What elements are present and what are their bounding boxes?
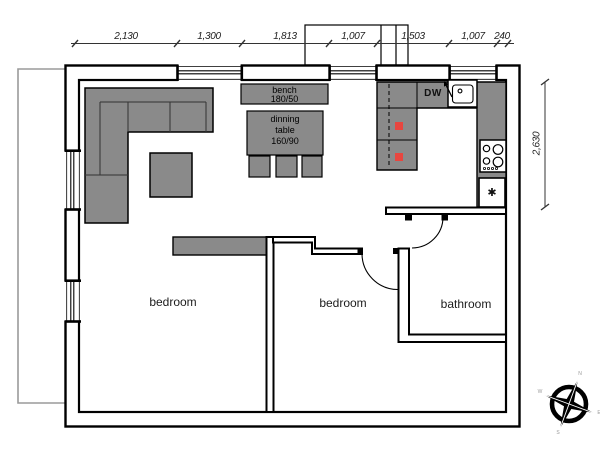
bedroom-door-arc — [362, 254, 398, 290]
corner-sofa — [85, 88, 213, 223]
room-label-bathroom: bathroom — [426, 297, 506, 311]
compass-west-label: W — [535, 389, 545, 395]
window-top-1 — [176, 63, 243, 83]
dishwasher-label: DW — [419, 88, 447, 99]
dining-chairs — [249, 156, 322, 177]
window-left-2 — [63, 279, 83, 322]
coffee-table — [150, 153, 192, 197]
kitchen-sink — [448, 80, 477, 107]
compass-rose — [545, 380, 594, 429]
wall-bathroom-left-bottom — [399, 249, 507, 343]
bathroom-door-arc — [412, 217, 443, 248]
wall-bedroom-middle-top — [273, 237, 362, 254]
compass-north-label: N — [575, 371, 585, 377]
compass-south-label: S — [553, 430, 563, 436]
floor-plan-drawing — [0, 0, 600, 460]
freezer-symbol: ✱ — [479, 186, 505, 199]
dining-table-label-line1: dinning — [247, 115, 323, 125]
dining-table-label-line3: 160/90 — [247, 137, 323, 147]
bench-label-line2: 180/50 — [241, 95, 328, 105]
window-left-1 — [63, 149, 83, 210]
wall-kitchen-bathroom — [386, 208, 506, 215]
room-label-bedroom-left: bedroom — [133, 295, 213, 309]
cooktop — [480, 140, 506, 172]
wall-bedrooms-divider — [267, 237, 274, 412]
dimension-right: 2,630 — [532, 104, 543, 184]
dimension-top-2: 1,300 — [169, 31, 249, 42]
room-label-bedroom-middle: bedroom — [303, 296, 383, 310]
terrace-outline — [18, 69, 65, 403]
compass-east-label: E — [594, 410, 600, 416]
dining-table-label-line2: table — [247, 126, 323, 136]
dimension-top-7: 240 — [462, 31, 542, 42]
floor-plan-canvas: 2,130 1,300 1,813 1,007 1,503 1,007 240 … — [0, 0, 600, 460]
dimension-top-1: 2,130 — [86, 31, 166, 42]
sideboard — [173, 237, 267, 255]
window-top-2 — [328, 63, 378, 83]
